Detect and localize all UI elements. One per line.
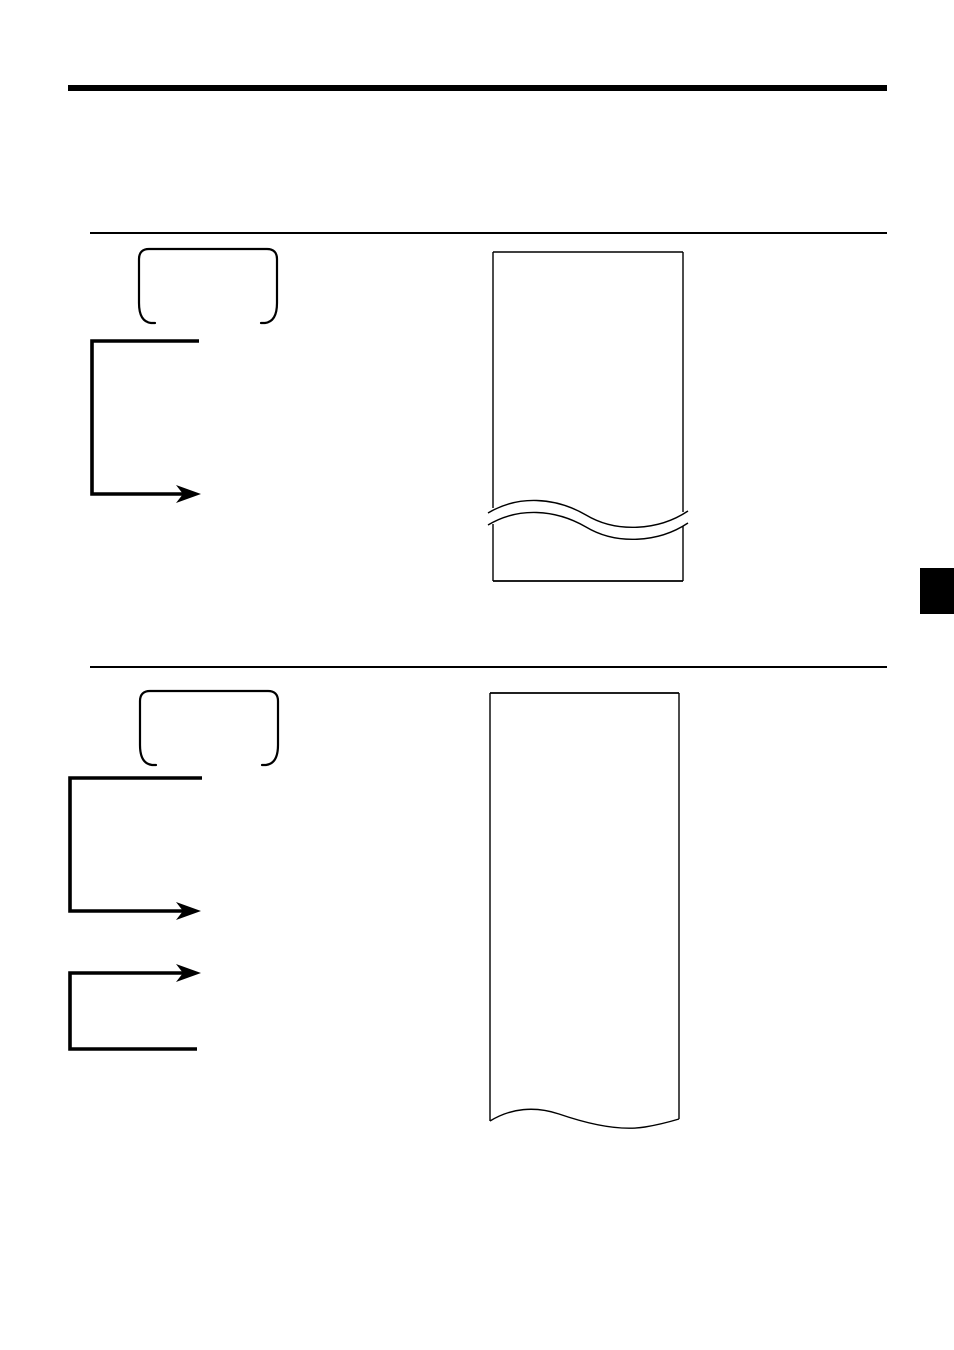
- receipt-paper-torn-bottom-icon: [483, 688, 698, 1143]
- manual-page: [0, 0, 954, 1350]
- loop-arrow-right-icon: [63, 962, 213, 1057]
- keycap-path: [140, 691, 278, 765]
- receipt-outline: [490, 693, 679, 1128]
- thin-section-rule-2: [90, 666, 887, 668]
- receipt-outline: [488, 252, 688, 581]
- elbow-arrow-down-right-icon: [63, 770, 213, 926]
- keycap-outline-icon: [131, 685, 287, 771]
- thin-section-rule-1: [90, 232, 887, 234]
- flow-line: [70, 778, 202, 911]
- flow-line: [70, 973, 197, 1049]
- page-edge-index-tab: [920, 568, 954, 614]
- tear-wave-bottom: [490, 1109, 679, 1128]
- thick-section-rule: [68, 85, 887, 91]
- flow-line: [92, 341, 199, 494]
- elbow-arrow-down-right-icon: [85, 333, 210, 508]
- keycap-path: [139, 249, 277, 323]
- receipt-paper-torn-middle-icon: [483, 247, 693, 587]
- keycap-outline-icon: [130, 243, 286, 329]
